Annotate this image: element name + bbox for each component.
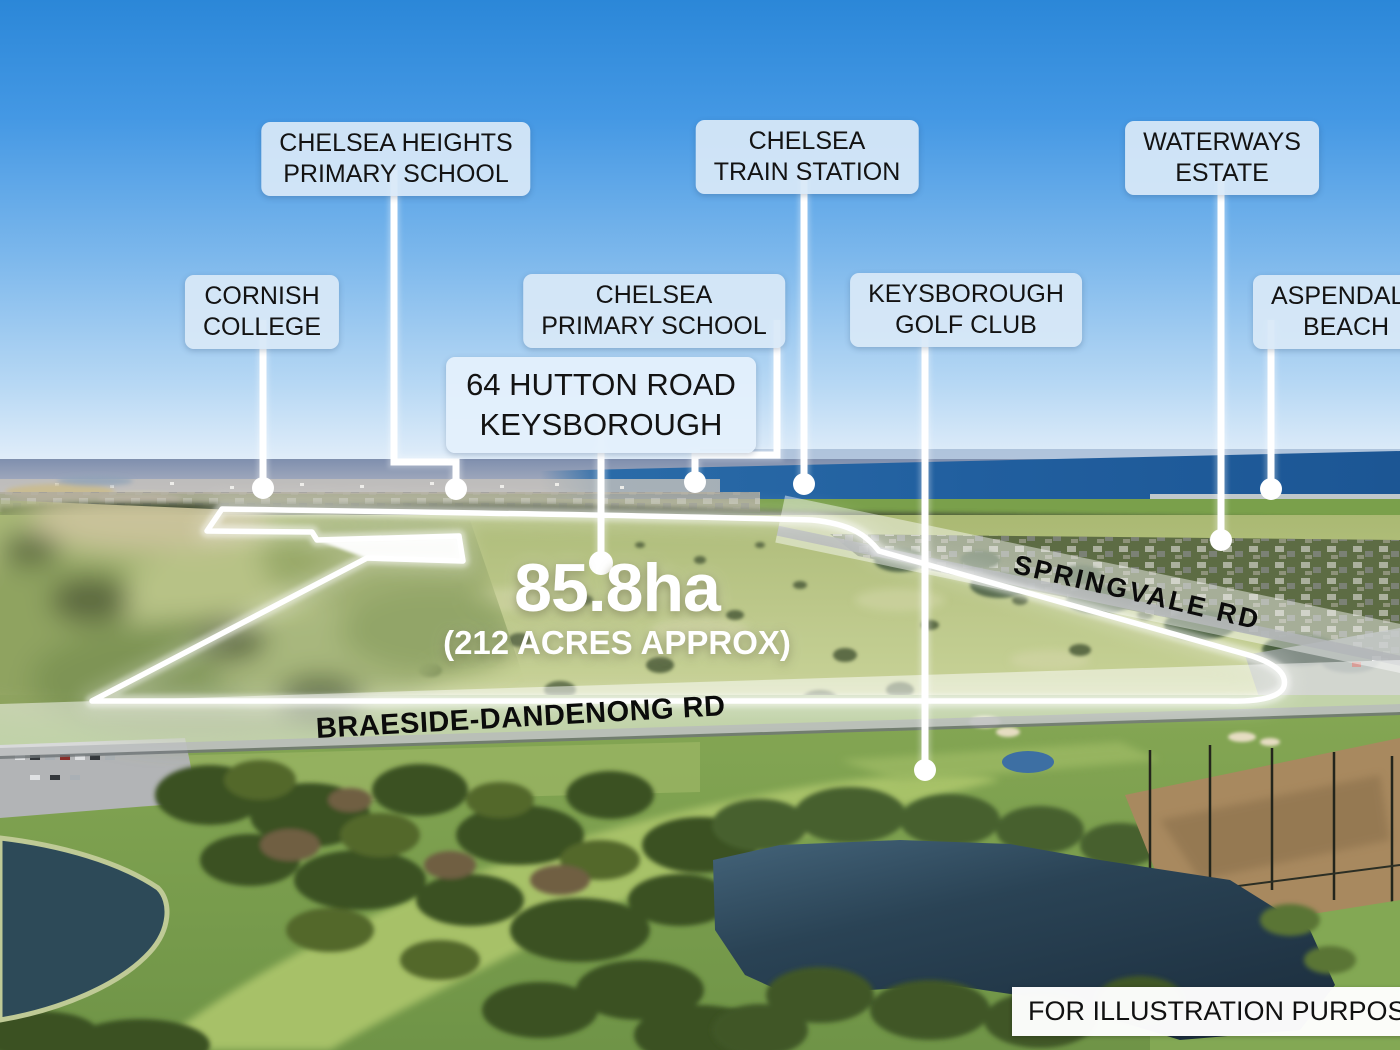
- site-area-acres: (212 ACRES APPROX): [443, 624, 791, 662]
- callout-label: ASPENDALE: [1271, 281, 1400, 312]
- site-area-label: 85.8ha (212 ACRES APPROX): [443, 552, 791, 662]
- callout-label: CORNISH: [203, 281, 321, 312]
- aerial-photo: CHELSEA HEIGHTS PRIMARY SCHOOL CHELSEA T…: [0, 0, 1400, 1050]
- callout-label: CHELSEA: [541, 280, 767, 311]
- callout-aspendale-beach: ASPENDALE BEACH: [1253, 275, 1400, 349]
- callout-label: CHELSEA HEIGHTS: [279, 128, 512, 159]
- callout-label: CHELSEA: [714, 126, 901, 157]
- address-line: KEYSBOROUGH: [466, 405, 736, 445]
- small-pond: [1002, 751, 1054, 773]
- callout-label: COLLEGE: [203, 312, 321, 343]
- callout-chelsea-heights-primary-school: CHELSEA HEIGHTS PRIMARY SCHOOL: [261, 122, 530, 196]
- callout-label: GOLF CLUB: [868, 310, 1064, 341]
- disclaimer-text: FOR ILLUSTRATION PURPOSE ONLY: [1012, 987, 1400, 1036]
- property-address-label: 64 HUTTON ROAD KEYSBOROUGH: [446, 357, 756, 453]
- callout-keysborough-golf-club: KEYSBOROUGH GOLF CLUB: [850, 273, 1082, 347]
- callout-label: WATERWAYS: [1143, 127, 1301, 158]
- site-area-hectares: 85.8ha: [443, 552, 791, 624]
- address-line: 64 HUTTON ROAD: [466, 365, 736, 405]
- callout-label: TRAIN STATION: [714, 157, 901, 188]
- callout-chelsea-primary-school: CHELSEA PRIMARY SCHOOL: [523, 274, 785, 348]
- callout-label: BEACH: [1271, 312, 1400, 343]
- callout-waterways-estate: WATERWAYS ESTATE: [1125, 121, 1319, 195]
- callout-label: ESTATE: [1143, 158, 1301, 189]
- callout-label: PRIMARY SCHOOL: [279, 159, 512, 190]
- callout-chelsea-train-station: CHELSEA TRAIN STATION: [696, 120, 919, 194]
- callout-cornish-college: CORNISH COLLEGE: [185, 275, 339, 349]
- callout-label: KEYSBOROUGH: [868, 279, 1064, 310]
- callout-label: PRIMARY SCHOOL: [541, 311, 767, 342]
